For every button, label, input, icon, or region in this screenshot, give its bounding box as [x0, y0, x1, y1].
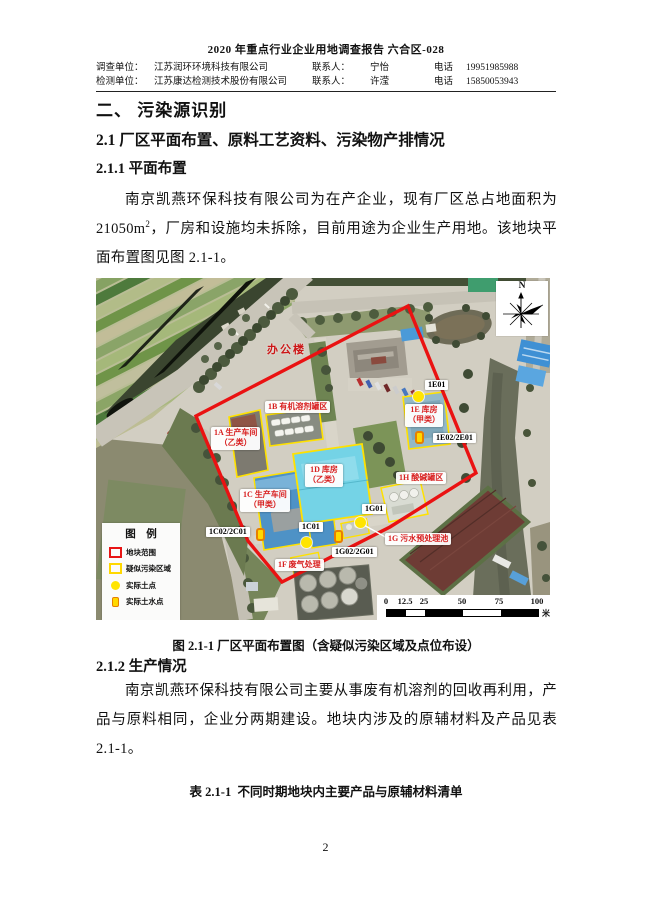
map-label-1a-workshop: 1A 生产车间 （乙类）: [211, 427, 260, 450]
survey-unit-value: 江苏润环环境科技有限公司: [154, 62, 312, 74]
point-label-1c01: 1C01: [299, 522, 323, 532]
scale-tick: 12.5: [398, 596, 413, 606]
map-label-1b-solvent-tanks: 1B 有机溶剂罐区: [265, 401, 330, 413]
header-row-survey: 调查单位： 江苏润环环境科技有限公司 联系人： 宁怡 电话 1995198598…: [96, 62, 556, 74]
sample-point-1c01-marker: [301, 537, 312, 548]
point-label-1g01: 1G01: [362, 504, 386, 514]
treatment-tanks: [294, 565, 373, 620]
report-page: 2020 年重点行业企业用地调查报告 六合区-028 调查单位： 江苏润环环境科…: [0, 0, 651, 909]
north-label: N: [496, 281, 548, 292]
legend-item-soil-water-point: 实际土水点: [109, 596, 180, 607]
survey-contact-name: 宁怡: [370, 62, 434, 74]
boundary-symbol-icon: [109, 547, 122, 558]
legend-title: 图 例: [102, 526, 180, 541]
legend-item-boundary: 地块范围: [109, 547, 180, 558]
paragraph-production: 南京凯燕环保科技有限公司主要从事废有机溶剂的回收再利用，产品与原料相同，企业分两…: [96, 677, 557, 764]
subsection-heading-2-1-1: 2.1.1 平面布置: [96, 157, 187, 178]
testing-unit-value: 江苏康达检测技术股份有限公司: [154, 76, 312, 88]
office-building: [346, 337, 408, 381]
subsection-heading-2-1: 2.1 厂区平面布置、原料工艺资料、污染物产排情况: [96, 128, 445, 150]
scale-tick: 75: [495, 596, 504, 606]
suspect-area-symbol-icon: [109, 563, 122, 574]
section-heading: 二、 污染源识别: [96, 96, 227, 121]
scale-tick: 0: [384, 596, 388, 606]
scale-unit-label: 米: [542, 608, 550, 619]
figure-caption: 图 2.1-1 厂区平面布置图（含疑似污染区域及点位布设）: [96, 635, 556, 654]
header-row-testing: 检测单位： 江苏康达检测技术股份有限公司 联系人： 许滢 电话 15850053…: [96, 76, 556, 88]
scale-tick: 100: [531, 596, 544, 606]
map-label-1f-gas-treatment: 1F 废气处理: [275, 559, 324, 571]
testing-unit-label: 检测单位：: [96, 76, 154, 88]
map-scale-bar: 0 12.5 25 50 75 100 米: [377, 595, 550, 620]
point-label-1g02: 1G02/2G01: [332, 547, 377, 557]
survey-unit-label: 调查单位：: [96, 62, 154, 74]
point-label-1e01: 1E01: [425, 380, 448, 390]
map-label-1h-acid-tanks: 1H 酸碱罐区: [396, 472, 446, 484]
scale-tick: 50: [458, 596, 467, 606]
scale-tick: 25: [420, 596, 429, 606]
map-label-1c-workshop: 1C 生产车间 （甲类）: [240, 489, 290, 512]
map-legend: 图 例 地块范围 疑似污染区域 实际土点 实际土水点: [102, 523, 180, 620]
soil-point-symbol-icon: [109, 581, 122, 590]
map-label-1g-sewage-pool: 1G 污水预处理池: [385, 533, 451, 545]
sample-point-1e01-marker: [413, 391, 424, 402]
sample-point-1g02-marker: [334, 530, 343, 543]
report-header-title: 2020 年重点行业企业用地调查报告 六合区-028: [96, 41, 556, 57]
page-number: 2: [0, 840, 651, 855]
legend-item-label: 实际土水点: [126, 596, 164, 607]
survey-phone-number: 19951985988: [466, 62, 556, 74]
map-label-1e-warehouse: 1E 库房 （甲类）: [405, 404, 443, 427]
soil-water-point-symbol-icon: [109, 597, 122, 607]
paragraph-plant-layout: 南京凯燕环保科技有限公司为在产企业，现有厂区总占地面积为21050m2，厂房和设…: [96, 186, 557, 273]
scale-bar-segments: [386, 609, 539, 617]
site-map-figure: N 图 例 地块范围 疑似污染区域: [96, 278, 550, 620]
header-divider: [96, 91, 556, 92]
survey-phone-label: 电话: [434, 62, 466, 74]
sample-point-1c02-marker: [256, 528, 265, 541]
legend-item-label: 地块范围: [126, 547, 156, 558]
testing-phone-label: 电话: [434, 76, 466, 88]
testing-contact-label: 联系人：: [312, 76, 370, 88]
map-label-1d-warehouse: 1D 库房 （乙类）: [305, 464, 343, 487]
map-label-office: 办公楼: [267, 341, 306, 357]
paragraph-text: ，厂房和设施均未拆除，目前用途为企业生产用地。该地块平面布置图见图 2.1-1。: [96, 221, 557, 266]
legend-item-suspect-area: 疑似污染区域: [109, 563, 180, 574]
testing-contact-name: 许滢: [370, 76, 434, 88]
sample-point-1g01-marker: [355, 517, 366, 528]
legend-item-label: 实际土点: [126, 580, 156, 591]
sample-point-1e02-marker: [415, 431, 424, 444]
compass-icon: [500, 292, 544, 332]
legend-item-soil-point: 实际土点: [109, 580, 180, 591]
survey-contact-label: 联系人：: [312, 62, 370, 74]
compass-rose: N: [496, 281, 548, 336]
table-caption: 表 2.1-1 不同时期地块内主要产品与原辅材料清单: [96, 781, 556, 800]
legend-item-label: 疑似污染区域: [126, 563, 171, 574]
subsection-heading-2-1-2: 2.1.2 生产情况: [96, 655, 187, 676]
point-label-1e02: 1E02/2E01: [433, 433, 476, 443]
testing-phone-number: 15850053943: [466, 76, 556, 88]
point-label-1c02: 1C02/2C01: [206, 527, 250, 537]
